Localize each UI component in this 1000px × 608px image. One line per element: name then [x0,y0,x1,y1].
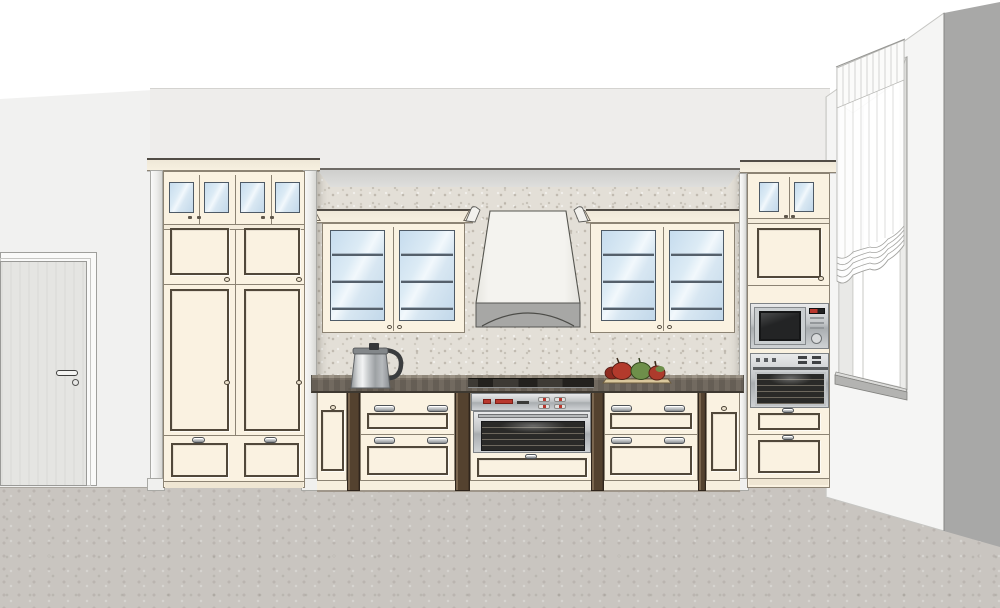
door-knob[interactable] [296,277,302,282]
oven-handle[interactable] [753,367,828,370]
door-handle[interactable] [667,325,672,329]
shelf-line [603,280,654,283]
oven-display [495,399,513,404]
rail-line [164,284,304,285]
door-panel[interactable] [711,412,737,471]
cabinet-rail [748,218,829,224]
plinth-shade [165,482,303,488]
shelf-line [401,253,453,256]
drawer-handle[interactable] [664,405,685,412]
tall-cabinet-right-cornice [740,160,836,173]
door-lock-knob [72,379,79,386]
microwave-display [809,308,825,314]
drawer-front[interactable] [244,443,299,477]
oven-control-dash [517,401,529,404]
door-knob[interactable] [224,380,230,385]
drawer-front[interactable] [610,446,692,475]
wood-post [698,392,706,491]
door-handle[interactable] [188,216,192,219]
drawer-handle[interactable] [611,405,632,412]
drawer-handle[interactable] [427,405,448,412]
tall-cabinet-right-body [747,173,830,488]
oven-control-panel [471,393,591,411]
plinth-shade [749,479,828,485]
pilaster-column [150,170,163,488]
niche-soffit [316,168,742,187]
glass-pane[interactable] [240,182,265,213]
drawer-handle[interactable] [782,408,794,413]
drawer-handle[interactable] [192,437,205,443]
oven-button[interactable] [554,397,566,402]
drawer-front[interactable] [758,413,820,430]
drawer-front[interactable] [367,413,448,429]
door-panel[interactable] [170,289,229,431]
oven-display [483,399,491,404]
oven-button[interactable] [538,397,550,402]
drawer-handle[interactable] [611,437,632,444]
wall-cabinet-left-cornice [316,209,473,223]
wall-cabinet-right-body [590,223,735,333]
render-viewport[interactable] [0,0,1000,608]
base-drawer-unit-right[interactable] [604,392,698,481]
rail-line [164,435,304,436]
shelf-line [332,307,383,310]
oven-window [481,421,585,451]
drawer-handle[interactable] [525,454,537,459]
pilaster-column [303,170,317,488]
oven-button[interactable] [554,404,566,409]
door-knob[interactable] [330,405,336,410]
door-panel[interactable] [321,410,344,471]
drawer-front[interactable] [477,458,587,477]
door-panel[interactable] [244,289,300,431]
curtain[interactable] [836,39,905,283]
door-handle[interactable] [657,325,662,329]
shelf-line [603,307,654,310]
oven-buttons[interactable] [812,356,821,365]
glass-pane[interactable] [204,182,229,213]
oven-button[interactable] [538,404,550,409]
rail-line [605,434,697,435]
microwave-window [759,311,801,341]
shelf-line [332,280,383,283]
cooktop[interactable] [468,378,594,388]
wood-post [347,392,360,491]
door-handle[interactable] [397,325,402,329]
oven-door[interactable] [473,411,591,453]
wood-post [455,392,470,491]
drawer-handle[interactable] [264,437,277,443]
drawer-handle[interactable] [427,437,448,444]
base-drawer-unit-left[interactable] [360,392,455,481]
door-handle[interactable] [197,216,201,219]
glass-pane[interactable] [399,230,455,321]
wall-cabinet-left-body [322,223,465,333]
glass-pane[interactable] [759,182,779,212]
base-door-cabinet-left[interactable] [317,392,347,481]
wall-oven[interactable] [750,353,829,408]
door-panel[interactable] [170,228,229,275]
oven-control-dashes [756,358,778,362]
center-stile [663,227,664,331]
drawer-front[interactable] [171,443,228,477]
glass-pane[interactable] [169,182,194,213]
microwave[interactable] [750,303,829,349]
center-stile [393,227,394,331]
drawer-front[interactable] [758,440,820,473]
wood-post [591,392,604,491]
door-knob[interactable] [296,380,302,385]
oven-handle[interactable] [478,414,588,418]
tall-cabinet-left-body [163,171,305,488]
oven-window [755,372,826,406]
door-handle[interactable] [270,216,274,219]
door-panel[interactable] [244,228,300,275]
base-door-cabinet-right[interactable] [706,392,740,481]
shelf-line [401,307,453,310]
center-stile [235,230,236,435]
pilaster-column [739,173,747,488]
stile [235,175,236,224]
range-oven-unit[interactable] [470,392,592,481]
drawer-handle[interactable] [782,435,794,440]
shelf-line [671,307,722,310]
drawer-front[interactable] [367,446,448,475]
glass-pane[interactable] [601,230,656,321]
door-knob[interactable] [818,276,824,281]
rail-line [361,434,454,435]
drawer-handle[interactable] [374,405,395,412]
right-wall-edge [944,2,1000,547]
door-handle[interactable] [56,370,78,376]
rail-line [748,285,829,286]
glass-pane[interactable] [275,182,300,213]
shelf-line [603,253,654,256]
glass-pane[interactable] [794,182,814,212]
glass-pane[interactable] [669,230,724,321]
microwave-buttons[interactable] [810,317,824,331]
oven-buttons[interactable] [798,356,807,365]
shelf-line [671,280,722,283]
base-plinth [317,480,740,492]
glass-pane[interactable] [330,230,385,321]
shelf-line [332,253,383,256]
tall-cabinet-left-cornice [147,158,320,171]
drawer-handle[interactable] [664,437,685,444]
stile [789,177,790,219]
door-knob[interactable] [224,277,230,282]
door-handle[interactable] [261,216,265,219]
microwave-dial[interactable] [811,333,822,344]
door-knob[interactable] [721,406,727,411]
shelf-line [401,280,453,283]
wall-cabinet-right-cornice [586,209,744,223]
door-handle[interactable] [387,325,392,329]
door-panel[interactable] [757,228,821,278]
shelf-line [671,253,722,256]
drawer-front[interactable] [610,413,692,429]
drawer-handle[interactable] [374,437,395,444]
